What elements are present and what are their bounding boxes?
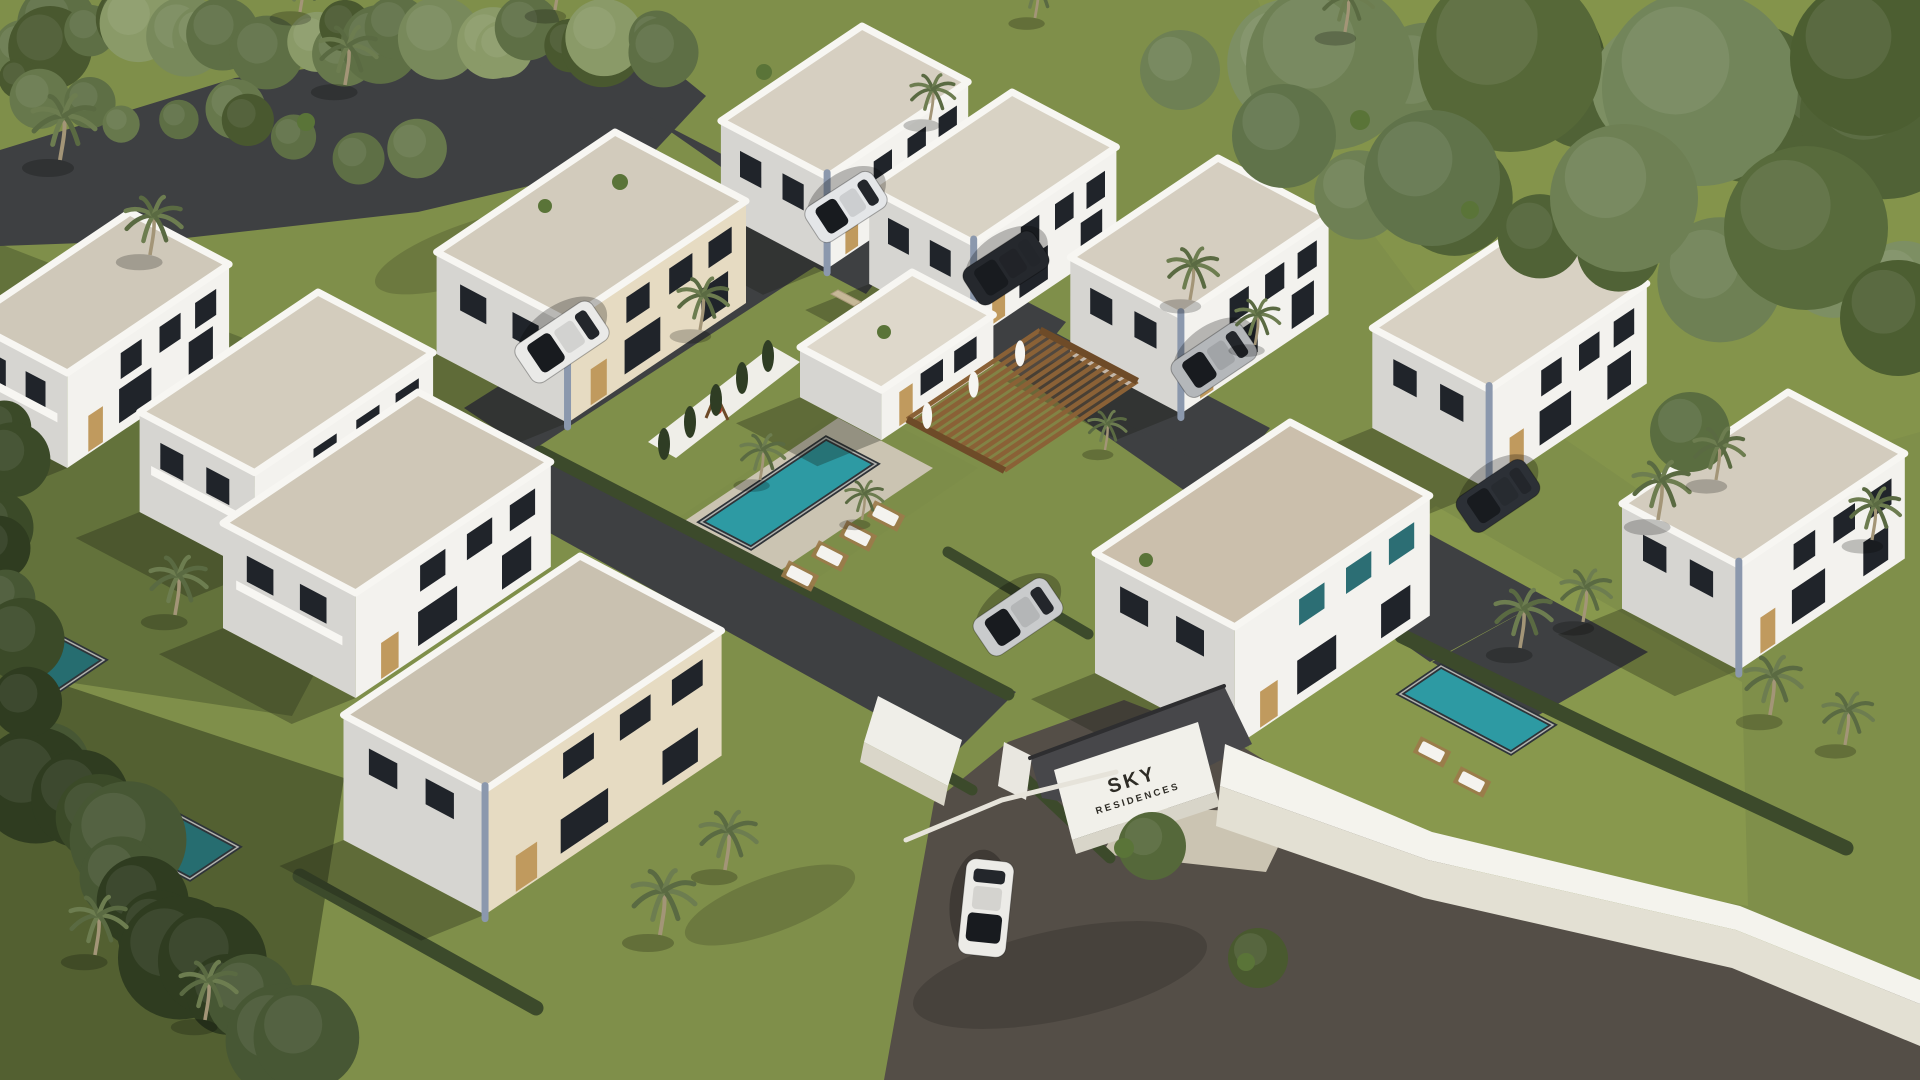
tree-canopy — [159, 100, 198, 139]
bush — [1139, 553, 1153, 567]
bush — [612, 174, 628, 190]
tree-canopy-highlight — [106, 109, 126, 129]
palm-shadow — [116, 254, 163, 270]
tree-canopy-highlight — [264, 995, 322, 1053]
bush — [297, 113, 315, 131]
palm-shadow — [270, 11, 312, 25]
palm-shadow — [171, 1019, 218, 1035]
tree-canopy — [102, 106, 139, 143]
palm-shadow — [525, 9, 567, 23]
tree-canopy-highlight — [1148, 37, 1192, 81]
palm-shadow — [1315, 31, 1357, 45]
palm-shadow — [1553, 621, 1595, 635]
pergola-curtain — [922, 403, 932, 429]
cypress-tree — [710, 384, 722, 416]
palm-shadow — [1228, 344, 1264, 357]
cypress-tree — [658, 428, 670, 460]
tree-canopy — [1228, 928, 1288, 988]
palm-shadow — [1842, 539, 1884, 553]
tree-canopy — [387, 119, 447, 179]
cypress-tree — [684, 406, 696, 438]
palm-shadow — [1624, 519, 1671, 535]
tree-canopy-highlight — [1506, 203, 1552, 249]
tree-canopy-highlight — [1852, 270, 1916, 334]
tree-canopy-highlight — [573, 7, 616, 50]
palm-shadow — [22, 159, 74, 177]
palm-shadow — [839, 519, 870, 530]
tree-canopy-highlight — [69, 10, 97, 38]
tree-canopy-highlight — [193, 5, 233, 45]
palm-shadow — [1160, 299, 1202, 313]
car-white-entry-roof — [971, 885, 1002, 911]
bush — [1114, 838, 1134, 858]
tree-canopy-highlight — [635, 24, 674, 63]
tree-canopy — [1140, 30, 1220, 110]
tree-canopy-highlight — [16, 75, 49, 108]
car-white-entry-windshield — [965, 912, 1002, 944]
tree-canopy-highlight — [163, 104, 185, 126]
palm-shadow — [1486, 647, 1533, 663]
palm-shadow — [691, 869, 738, 885]
palm-shadow — [1686, 479, 1728, 493]
tree-canopy-highlight — [0, 674, 37, 713]
tree-canopy — [333, 133, 385, 185]
tree-canopy-highlight — [237, 23, 278, 64]
tree-canopy-highlight — [1242, 93, 1299, 150]
palm-shadow — [622, 934, 674, 952]
tree-canopy — [1364, 110, 1500, 246]
palm-shadow — [61, 954, 108, 970]
bush — [756, 64, 772, 80]
tree-canopy — [1232, 84, 1336, 188]
bush — [538, 199, 552, 213]
tree-canopy-highlight — [1622, 7, 1730, 115]
tree-canopy — [628, 17, 698, 87]
tree-canopy — [222, 94, 274, 146]
palm-shadow — [1008, 17, 1044, 30]
palm-shadow — [903, 119, 939, 132]
tree-canopy-highlight — [17, 14, 63, 60]
tree-canopy-highlight — [1565, 137, 1646, 218]
palm-shadow — [670, 329, 712, 343]
bush — [1461, 201, 1479, 219]
palm-shadow — [1815, 744, 1857, 758]
tree-canopy-highlight — [406, 5, 452, 51]
palm-shadow — [733, 479, 769, 492]
tree-canopy-highlight — [393, 125, 426, 158]
pergola-curtain — [969, 372, 979, 398]
bush — [877, 325, 891, 339]
palm-shadow — [1082, 449, 1113, 460]
palm-shadow — [311, 84, 358, 100]
tree-canopy-highlight — [1658, 399, 1702, 443]
cypress-tree — [762, 340, 774, 372]
palm-shadow — [1736, 714, 1783, 730]
aerial-3d-render: SKY RESIDENCES — [0, 0, 1920, 1080]
tree-canopy-highlight — [1740, 160, 1830, 250]
tree-canopy-highlight — [338, 138, 367, 167]
palm-shadow — [141, 614, 188, 630]
tree-canopy-highlight — [275, 119, 300, 144]
tree-canopy — [1550, 124, 1698, 272]
tree-canopy-highlight — [1378, 122, 1453, 197]
bush — [1350, 110, 1370, 130]
pergola-curtain — [1015, 340, 1025, 366]
scene: SKY RESIDENCES — [0, 0, 1920, 1080]
bush — [1237, 953, 1255, 971]
cypress-tree — [736, 362, 748, 394]
tree-canopy-highlight — [227, 99, 256, 128]
